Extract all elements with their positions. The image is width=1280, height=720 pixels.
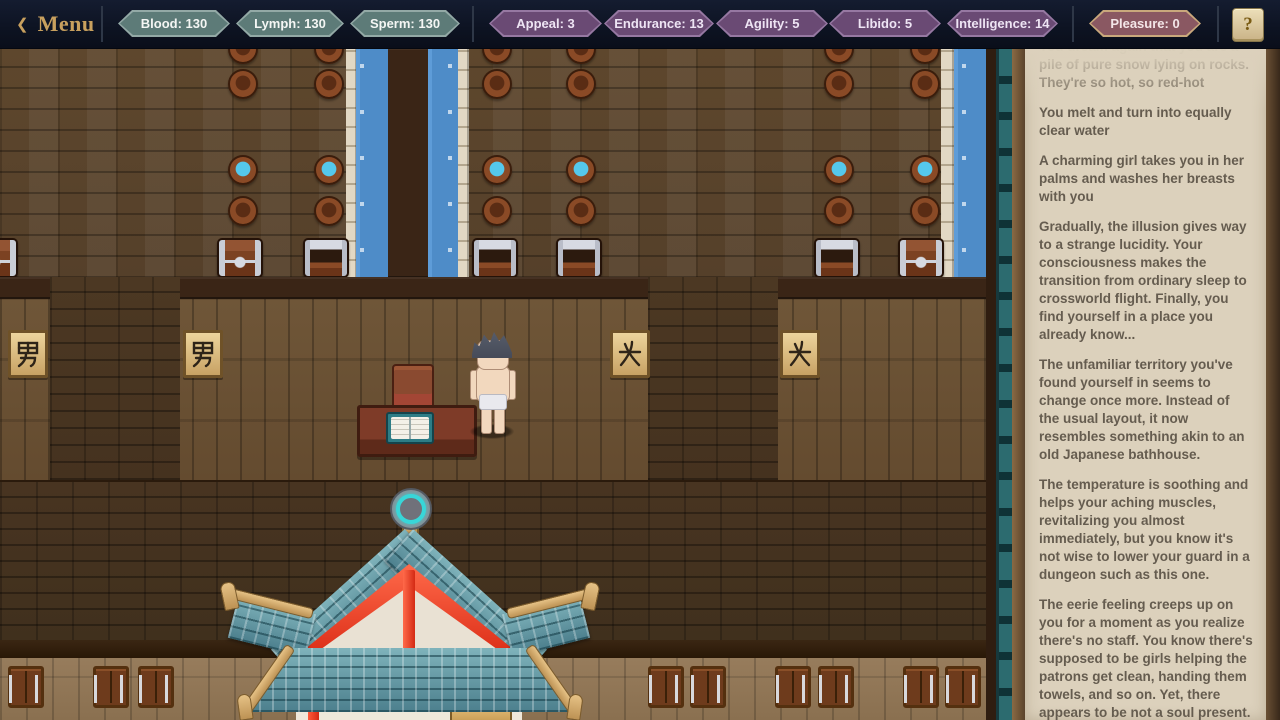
chest-open[interactable] <box>303 238 349 278</box>
water-channel <box>428 48 458 278</box>
water-channel <box>954 48 986 278</box>
bucket <box>566 196 596 226</box>
sign-women: 女 <box>780 330 820 378</box>
locker <box>93 666 129 708</box>
bucket <box>910 196 940 226</box>
water-waves <box>448 48 452 278</box>
bucket-with-water <box>910 155 940 185</box>
log-border-left <box>1012 48 1025 720</box>
sign-men: 男 <box>8 330 48 378</box>
stat-badge-lymph-label: Lymph: 130 <box>254 16 326 31</box>
game-window: 男 男 女 女 <box>0 0 1280 720</box>
stat-badge-lymph: Lymph: 130 <box>236 10 344 37</box>
top-bar: ❮ Menu Blood: 130 Lymph: 130 Sperm: 130 … <box>0 0 1280 49</box>
menu-button[interactable]: ❮ Menu <box>16 10 95 38</box>
portal-orb-glow <box>396 494 426 524</box>
kanji-women-icon <box>617 340 643 368</box>
bucket <box>566 69 596 99</box>
bucket <box>482 69 512 99</box>
corridor-men <box>50 277 180 480</box>
log-paragraph: Gradually, the illusion gives way to a s… <box>1039 218 1253 344</box>
locker <box>8 666 44 708</box>
stat-badge-appeal: Appeal: 3 <box>489 10 602 37</box>
stat-badge-appeal-label: Appeal: 3 <box>516 16 575 31</box>
bucket <box>228 69 258 99</box>
water-waves <box>962 48 966 278</box>
stat-badge-endurance: Endurance: 13 <box>604 10 714 37</box>
stat-badge-sperm: Sperm: 130 <box>350 10 460 37</box>
stat-badge-blood-label: Blood: 130 <box>141 16 207 31</box>
locker <box>138 666 174 708</box>
sign-women: 女 <box>610 330 650 378</box>
chest-open[interactable] <box>472 238 518 278</box>
open-book[interactable] <box>386 412 434 444</box>
stat-badge-pleasure-label: Pleasure: 0 <box>1110 16 1179 31</box>
bucket <box>314 69 344 99</box>
game-viewport[interactable]: 男 男 女 女 <box>0 48 996 720</box>
log-paragraph: A charming girl takes you in her palms a… <box>1039 152 1253 206</box>
log-paragraph: You dream again that you are a pile of p… <box>1039 48 1253 92</box>
bucket <box>482 196 512 226</box>
divider <box>101 6 103 42</box>
divider <box>472 6 474 42</box>
divider <box>1217 6 1219 42</box>
log-paragraph: The eerie feeling creeps up on you for a… <box>1039 596 1253 720</box>
bucket <box>824 196 854 226</box>
message-log-panel[interactable]: You dream again that you are a pile of p… <box>1012 48 1280 720</box>
locker <box>903 666 939 708</box>
message-log[interactable]: You dream again that you are a pile of p… <box>1025 48 1266 720</box>
stat-badge-endurance-label: Endurance: 13 <box>614 16 704 31</box>
help-button[interactable]: ? <box>1232 8 1264 42</box>
stat-badge-libido: Libido: 5 <box>829 10 941 37</box>
log-paragraph: You melt and turn into equally clear wat… <box>1039 104 1253 140</box>
stat-badge-sperm-label: Sperm: 130 <box>370 16 440 31</box>
log-paragraph: The temperature is soothing and helps yo… <box>1039 476 1253 584</box>
locker <box>775 666 811 708</box>
stat-badge-agility: Agility: 5 <box>716 10 828 37</box>
locker <box>690 666 726 708</box>
menu-label: Menu <box>38 11 95 37</box>
sign-men: 男 <box>183 330 223 378</box>
portal-orb[interactable] <box>390 488 432 530</box>
bucket-with-water <box>824 155 854 185</box>
stat-badge-intelligence-label: Intelligence: 14 <box>956 16 1050 31</box>
chest-open[interactable] <box>556 238 602 278</box>
character-briefs <box>479 394 507 410</box>
scene-edge <box>986 48 996 720</box>
help-button-label: ? <box>1243 14 1253 36</box>
stat-badge-libido-label: Libido: 5 <box>858 16 912 31</box>
locker <box>945 666 981 708</box>
stat-badge-agility-label: Agility: 5 <box>745 16 800 31</box>
divider <box>1072 6 1074 42</box>
bucket-with-water <box>482 155 512 185</box>
gable-center-post <box>403 570 415 654</box>
divider-wall <box>388 48 428 278</box>
player-character[interactable] <box>468 332 516 442</box>
stat-badge-blood: Blood: 130 <box>118 10 230 37</box>
bucket <box>314 196 344 226</box>
chest[interactable] <box>217 238 263 278</box>
chevron-left-icon: ❮ <box>16 17 29 32</box>
bucket-with-water <box>228 155 258 185</box>
log-paragraph: The unfamiliar territory you've found yo… <box>1039 356 1253 464</box>
bucket <box>910 69 940 99</box>
stat-badge-intelligence: Intelligence: 14 <box>947 10 1058 37</box>
bucket <box>824 69 854 99</box>
stat-badge-pleasure: Pleasure: 0 <box>1089 10 1201 37</box>
kanji-men-icon <box>190 340 216 368</box>
locker <box>648 666 684 708</box>
lower-roof <box>246 648 572 712</box>
bucket-with-water <box>314 155 344 185</box>
water-waves <box>360 48 364 278</box>
tile-edge <box>458 48 469 278</box>
log-border-right <box>1266 48 1280 720</box>
corridor-women <box>648 277 778 480</box>
locker <box>818 666 854 708</box>
bucket-with-water <box>566 155 596 185</box>
character-leg <box>481 406 492 434</box>
chest-open[interactable] <box>814 238 860 278</box>
chest[interactable] <box>898 238 944 278</box>
character-shadow <box>470 424 514 439</box>
chest[interactable] <box>0 238 18 278</box>
character-leg <box>494 406 505 434</box>
kanji-women-icon <box>787 340 813 368</box>
bucket <box>228 196 258 226</box>
kanji-men-icon <box>15 340 41 368</box>
